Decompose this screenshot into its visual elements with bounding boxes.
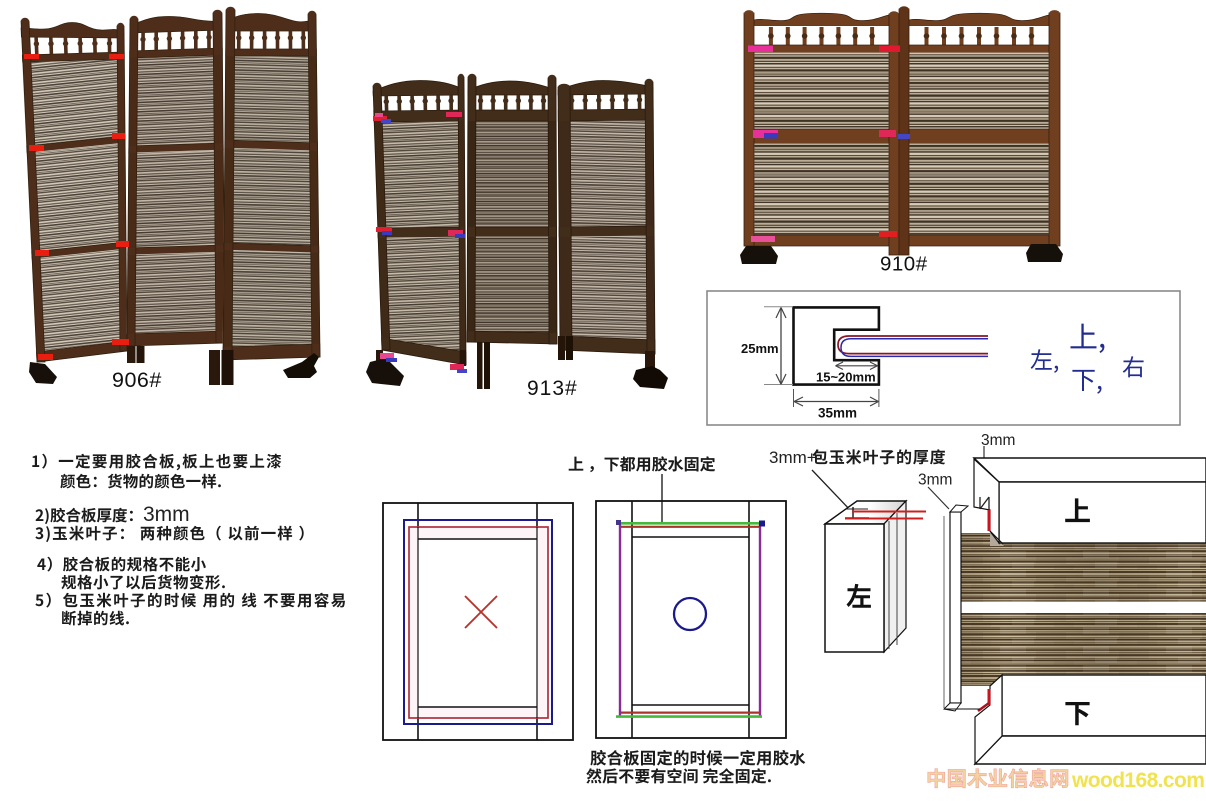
svg-text:906#: 906#: [112, 368, 162, 392]
svg-text:3mm: 3mm: [981, 432, 1015, 449]
svg-text:910#: 910#: [880, 253, 928, 276]
svg-text:25mm: 25mm: [741, 341, 779, 356]
svg-text:15~20mm: 15~20mm: [816, 370, 876, 385]
svg-text:3mm+: 3mm+: [769, 448, 817, 467]
svg-text:wood168.com: wood168.com: [1071, 769, 1204, 792]
svg-text:35mm: 35mm: [818, 406, 857, 421]
svg-text:3mm: 3mm: [143, 503, 190, 526]
svg-text:3mm: 3mm: [918, 472, 952, 489]
svg-text:913#: 913#: [527, 377, 578, 400]
